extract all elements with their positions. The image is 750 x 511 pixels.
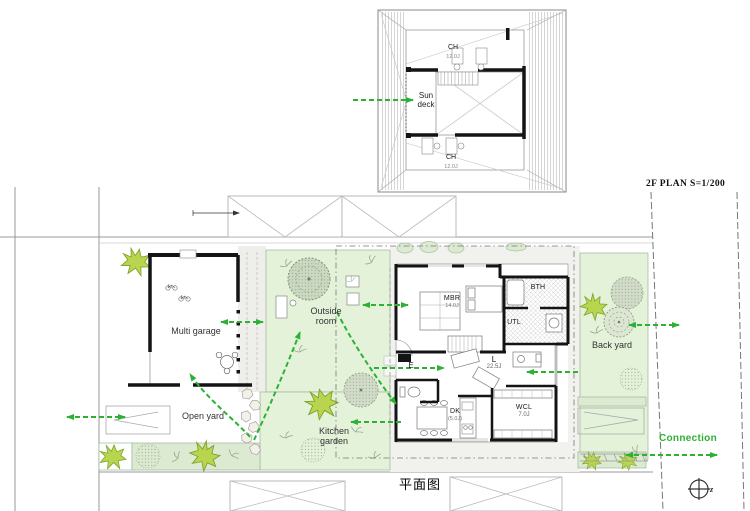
ch-bottom-label: CH 12.0J xyxy=(444,146,457,171)
kitchen-garden-label: Kitchen garden xyxy=(319,426,349,447)
plan-2f-title: 2F PLAN S=1/200 xyxy=(646,179,725,190)
drawing-caption: 平面图 xyxy=(399,478,441,493)
back-yard-label: Back yard xyxy=(592,340,632,350)
connection-label: Connection xyxy=(659,433,717,445)
tree-back-yard-stipple xyxy=(620,368,642,390)
entrance-label: E xyxy=(408,361,413,370)
tree-kitchen-garden xyxy=(344,373,378,407)
utl-label: UTL xyxy=(507,319,521,327)
wcl-label: WCL 7.0J xyxy=(516,404,532,419)
tree-back-yard-ringed xyxy=(604,307,634,337)
mbr-label: MBR 14.0J xyxy=(444,295,460,309)
garage xyxy=(128,250,252,385)
neighbor-roofs-top xyxy=(228,196,456,237)
open-yard-label: Open yard xyxy=(182,411,224,421)
bth-label: BTH xyxy=(531,284,546,292)
plan-2f xyxy=(378,10,566,192)
floor-plan-page: 2F PLAN S=1/200 Sun deck CH 12.0J CH 12.… xyxy=(0,0,750,511)
plan-drawing xyxy=(0,0,750,511)
compass-letter: z xyxy=(710,485,713,494)
multi-garage-label: Multi garage xyxy=(171,326,221,336)
tree-strip-stipple-1 xyxy=(136,444,160,468)
compass-icon xyxy=(688,478,710,500)
tree-back-yard-large xyxy=(611,277,643,309)
dk-label: DK (5.0J) xyxy=(448,408,462,422)
neighbor-roofs-bottom xyxy=(230,477,562,511)
stairs-2f xyxy=(438,72,478,85)
outside-room-label: Outside room xyxy=(310,306,341,327)
tree-outside-room xyxy=(288,258,330,300)
ch-top-label: CH 12.0J xyxy=(446,36,459,61)
living-label: L 22.5J xyxy=(487,355,502,371)
sun-deck-label: Sun deck xyxy=(418,91,435,109)
